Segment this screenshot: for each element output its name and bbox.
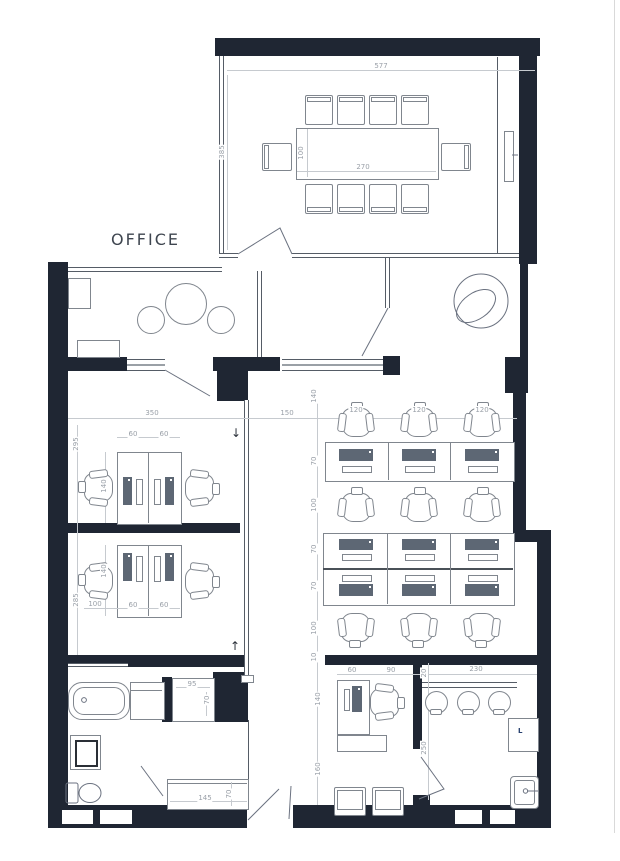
- dim-label: 120: [348, 406, 363, 414]
- wall: [513, 530, 551, 542]
- dim-label: 140: [100, 478, 108, 493]
- door-leaf: [141, 766, 163, 796]
- wall: [48, 357, 127, 371]
- wall: [505, 357, 528, 393]
- monitor: [402, 449, 436, 461]
- office-chair-arml: [365, 618, 375, 638]
- office-chair-armr: [428, 498, 438, 518]
- conference-chair: [401, 184, 429, 214]
- dim-label: 285: [72, 592, 80, 607]
- office-chair-back: [78, 481, 86, 493]
- dim-label: 60: [128, 601, 139, 609]
- double-door-leaf: [248, 786, 291, 820]
- counter: [130, 682, 165, 720]
- glass-partition: [282, 359, 383, 371]
- appliance-cabinet: [508, 718, 539, 752]
- monitor: [352, 686, 362, 712]
- double-door-leaf: [238, 228, 292, 254]
- keyboard: [344, 689, 350, 711]
- desk-divider: [148, 452, 149, 523]
- office-chair-arml: [428, 618, 438, 638]
- office-chair: [400, 608, 438, 648]
- dim-label: 60: [128, 430, 139, 438]
- office-chair: [400, 487, 438, 527]
- monitor: [402, 539, 436, 550]
- toilet-bowl: [79, 784, 101, 803]
- dim-label: 230: [468, 665, 483, 673]
- keyboard: [342, 466, 372, 473]
- office-chair-back: [212, 576, 220, 588]
- dim-label: 100: [310, 497, 318, 512]
- bar-stool: [457, 691, 480, 714]
- dim-label: 385: [218, 144, 226, 159]
- keyboard: [468, 575, 498, 582]
- office-chair: [463, 487, 501, 527]
- office-chair: [180, 469, 220, 507]
- page-edge: [614, 0, 615, 833]
- desk-divider: [450, 442, 451, 480]
- dim-label: 70: [225, 789, 233, 800]
- dim-label: 10: [310, 652, 318, 663]
- wall: [519, 38, 537, 264]
- monitor: [465, 449, 499, 461]
- conference-chair: [337, 184, 365, 214]
- tv-screen: [504, 131, 514, 182]
- dim-label: 150: [279, 409, 294, 417]
- keyboard: [136, 556, 143, 582]
- dim-label: 70: [310, 456, 318, 467]
- dim-line: [227, 75, 228, 250]
- window-opening: [62, 810, 93, 824]
- dim-label: 140: [100, 563, 108, 578]
- monitor: [165, 553, 174, 581]
- dim-label: 100: [297, 145, 305, 160]
- dim-label: 160: [314, 761, 322, 776]
- office-chair-back: [78, 574, 86, 586]
- dim-label: 120: [474, 406, 489, 414]
- window-opening: [100, 810, 132, 824]
- partition-wall: [292, 253, 519, 258]
- office-chair: [337, 608, 375, 648]
- conference-chair: [369, 95, 397, 125]
- dim-line: [297, 171, 436, 172]
- dim-label: 140: [310, 388, 318, 403]
- office-chair-armr: [375, 711, 395, 721]
- desk-divider: [387, 533, 388, 604]
- bar-stool: [425, 691, 448, 714]
- dim-label: 20: [420, 668, 428, 679]
- keyboard: [154, 556, 161, 582]
- office-chair-armr: [365, 413, 375, 433]
- bench: [77, 340, 120, 358]
- dim-line: [68, 418, 517, 419]
- dim-label: 70: [310, 581, 318, 592]
- dim-label: 70: [310, 544, 318, 555]
- counter-line: [167, 783, 247, 784]
- partition-wall: [385, 258, 390, 308]
- dim-label: 577: [373, 62, 388, 70]
- dim-label: 350: [144, 409, 159, 417]
- keyboard: [342, 575, 372, 582]
- office-chair-back: [351, 487, 363, 495]
- wall: [383, 356, 400, 375]
- conference-table: [296, 128, 439, 180]
- bar-counter: [422, 682, 517, 688]
- appliance-icon: L: [518, 727, 522, 735]
- dim-label: 90: [386, 666, 397, 674]
- armchair: [334, 787, 366, 816]
- office-chair: [463, 608, 501, 648]
- conference-chair: [305, 95, 333, 125]
- sideboard: [337, 735, 387, 752]
- conference-chair: [401, 95, 429, 125]
- office-chair-armr: [365, 498, 375, 518]
- conference-chair: [441, 143, 471, 171]
- desk-divider: [450, 533, 451, 604]
- office-chair-armr: [190, 590, 210, 600]
- keyboard: [468, 554, 498, 561]
- room-label-office: OFFICE: [111, 230, 180, 249]
- wall: [217, 371, 248, 401]
- keyboard: [468, 466, 498, 473]
- floor-plan-canvas: L OFFICE 57738510027: [0, 0, 620, 861]
- monitor: [165, 477, 174, 505]
- arrow-up: ↑: [229, 642, 241, 650]
- office-chair: [78, 562, 118, 600]
- window-opening: [455, 810, 482, 824]
- lounge-chair: [207, 306, 235, 334]
- office-chair-armr: [190, 497, 210, 507]
- dim-line: [428, 663, 429, 800]
- dim-label: 140: [314, 691, 322, 706]
- wall: [537, 542, 551, 828]
- dim-line: [307, 129, 308, 177]
- keyboard: [405, 575, 435, 582]
- office-chair-back: [414, 487, 426, 495]
- wall: [325, 655, 547, 665]
- conference-chair: [262, 143, 292, 171]
- window-opening: [490, 810, 515, 824]
- sink-basin: [75, 740, 98, 767]
- desk-divider: [148, 545, 149, 616]
- office-chair-back: [475, 640, 487, 648]
- monitor: [339, 584, 373, 596]
- dim-line: [117, 437, 180, 438]
- door-leaf: [419, 757, 444, 799]
- wall-face-line: [497, 57, 498, 253]
- lounge-table: [165, 283, 207, 325]
- office-chair: [180, 562, 220, 600]
- dim-line: [317, 390, 318, 805]
- monitor: [339, 539, 373, 550]
- door-leaf: [165, 370, 210, 396]
- monitor: [465, 584, 499, 596]
- partition-wall: [219, 253, 238, 258]
- lounge-chair: [137, 306, 165, 334]
- dim-label: 60: [159, 430, 170, 438]
- office-chair-armr: [428, 413, 438, 433]
- monitor: [339, 449, 373, 461]
- glass-partition-end: [241, 675, 254, 683]
- dim-label: 145: [197, 794, 212, 802]
- dim-label: 100: [87, 600, 102, 608]
- keyboard: [154, 479, 161, 505]
- dim-label: 100: [310, 620, 318, 635]
- dim-line: [77, 425, 78, 655]
- cabinet: [68, 278, 91, 309]
- keyboard: [136, 479, 143, 505]
- egg-chair: [454, 274, 508, 328]
- office-chair-armr: [491, 498, 501, 518]
- kitchen-sink-inner: [514, 780, 535, 805]
- wall: [520, 263, 528, 358]
- wall: [48, 262, 68, 828]
- arrow-down: ↓: [230, 429, 242, 437]
- wall: [215, 38, 540, 56]
- dim-label: 250: [420, 740, 428, 755]
- bar-stool: [488, 691, 511, 714]
- dim-label: 60: [347, 666, 358, 674]
- armchair: [372, 787, 404, 816]
- dim-label: 70: [203, 695, 211, 706]
- monitor: [123, 553, 132, 581]
- monitor: [402, 584, 436, 596]
- office-chair-back: [212, 483, 220, 495]
- office-chair: [365, 683, 405, 721]
- office-chair-back: [412, 640, 424, 648]
- counter-line: [131, 690, 162, 691]
- partition-wall: [68, 267, 222, 272]
- dim-label: 95: [187, 680, 198, 688]
- dim-label: 270: [355, 163, 370, 171]
- conference-chair: [337, 95, 365, 125]
- office-chair: [78, 469, 118, 507]
- office-chair-arml: [89, 497, 109, 507]
- keyboard: [342, 554, 372, 561]
- door-leaf: [362, 308, 388, 356]
- desk-divider: [388, 442, 389, 480]
- desk-divider: [323, 568, 513, 570]
- monitor: [465, 539, 499, 550]
- dim-line: [227, 70, 535, 71]
- conference-chair: [305, 184, 333, 214]
- office-chair-arml: [491, 618, 501, 638]
- monitor: [123, 477, 132, 505]
- office-chair-armr: [491, 413, 501, 433]
- bathtub-inner: [73, 687, 125, 715]
- wall: [213, 357, 280, 371]
- office-chair-back: [397, 697, 405, 709]
- dim-label: 120: [411, 406, 426, 414]
- office-chair-arml: [89, 590, 109, 600]
- dim-line: [337, 674, 537, 675]
- keyboard: [405, 554, 435, 561]
- glass-partition: [244, 400, 249, 677]
- office-chair-back: [477, 487, 489, 495]
- egg-chair-seat: [451, 283, 502, 330]
- partition-wall: [68, 663, 128, 667]
- conference-chair: [369, 184, 397, 214]
- glass-partition: [127, 359, 165, 371]
- dim-label: 295: [72, 436, 80, 451]
- office-chair-back: [349, 640, 361, 648]
- keyboard: [405, 466, 435, 473]
- dim-label: 60: [159, 601, 170, 609]
- desk-row: [325, 442, 515, 482]
- office-chair: [337, 487, 375, 527]
- glass-partition: [257, 271, 262, 357]
